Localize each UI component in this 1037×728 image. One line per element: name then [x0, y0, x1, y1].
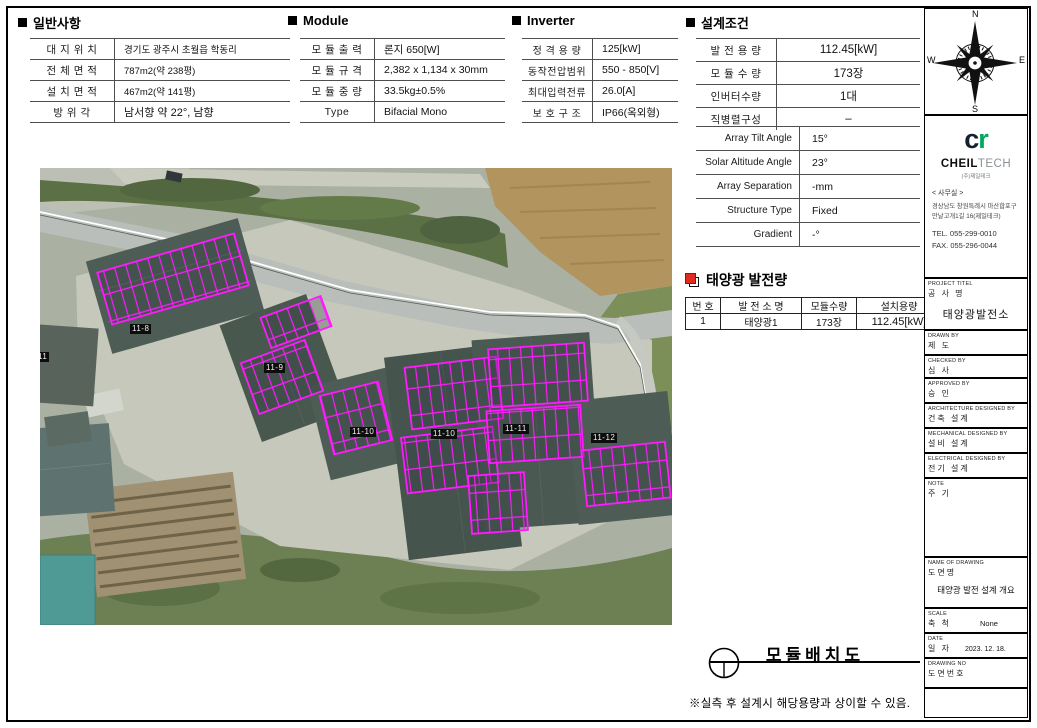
row-label: Array Tilt Angle: [696, 127, 800, 150]
square-bullet-icon: [512, 16, 521, 25]
satellite-map: 11 11-8 11-9 11-10 11-10 11-11 11-12: [40, 168, 672, 625]
field-label-en: ELECTRICAL DESIGNED BY: [928, 456, 1005, 462]
row-value: 2,382 x 1,134 x 30mm: [375, 60, 505, 80]
square-bullet-icon: [18, 18, 27, 27]
parcel-label: 11-10: [350, 427, 376, 437]
table-row: 1 태양광1 173장 112.45[kW]: [686, 314, 942, 330]
office-info: < 사무실 > 경상남도 창원특례시 마산합포구 만날고개1길 16(제일테크)…: [932, 188, 1023, 252]
field-label-ko: 주 기: [928, 488, 951, 499]
row-value: 15°: [800, 127, 920, 150]
table-row: 모 듈 출 력론지 650[W]: [300, 38, 505, 59]
table-row: 모 듈 중 량33.5kg±0.5%: [300, 80, 505, 101]
field-label-en: SCALE: [928, 611, 947, 617]
table-row: 모 듈 규 격2,382 x 1,134 x 30mm: [300, 59, 505, 80]
row-label: 전 체 면 적: [30, 60, 115, 80]
field-label-ko: 심 사: [928, 365, 951, 376]
cell-plant-name: 태양광1: [721, 314, 802, 330]
row-value: 787m2(약 238평): [115, 60, 290, 80]
table-row: 대 지 위 치경기도 광주시 초월읍 학동리: [30, 38, 290, 59]
field-label-ko: 공 사 명: [928, 288, 965, 299]
office-heading: < 사무실 >: [932, 188, 1023, 198]
section-title-text: Inverter: [527, 13, 575, 28]
field-label-en: PROJECT TITEL: [928, 281, 973, 287]
generation-section-title: 태양광 발전량: [685, 270, 787, 290]
field-label-ko: 축 척: [928, 618, 951, 629]
table-row: 설 치 면 적467m2(약 141평): [30, 80, 290, 101]
scale-value: None: [980, 619, 998, 628]
field-label-ko: 제 도: [928, 340, 951, 351]
office-phone: TEL. 055-299-0010 FAX. 055-296-0044: [932, 228, 1023, 253]
office-address-line2: 만날고개1길 16(제일테크): [932, 212, 1023, 222]
field-label-en: APPROVED BY: [928, 381, 970, 387]
field-label-ko: 승 인: [928, 388, 951, 399]
row-value: 550 - 850[V]: [593, 60, 678, 80]
inverter-section-title: Inverter: [512, 13, 575, 28]
design-section-title: 설계조건: [686, 13, 749, 32]
column-header: 모듈수량: [802, 298, 857, 314]
company-logo: cr: [925, 124, 1027, 155]
compass-south-label: S: [972, 104, 978, 114]
table-row: Gradient-°: [696, 222, 920, 247]
date-value: 2023. 12. 18.: [965, 646, 1006, 653]
table-row: 최대입력전류26.0[A]: [522, 80, 678, 101]
module-section-title: Module: [288, 13, 349, 28]
compass-box: N E S W: [924, 8, 1028, 115]
field-label-en: ARCHITECTURE DESIGNED BY: [928, 406, 1015, 412]
row-value: -°: [800, 223, 920, 246]
table-row: 발 전 용 량112.45[kW]: [696, 38, 920, 61]
drawing-name-value: 태양광 발전 설계 개요: [925, 584, 1027, 596]
mechanical-designed-box: MECHANICAL DESIGNED BY 설비 설계: [924, 428, 1028, 453]
section-title-text: 일반사항: [33, 13, 81, 32]
note-box: NOTE 주 기: [924, 478, 1028, 557]
cell-no: 1: [686, 314, 721, 330]
section-title-text: 설계조건: [701, 13, 749, 32]
table-header-row: 번 호 발 전 소 명 모듈수량 설치용량: [686, 298, 942, 314]
project-title-value: 태양광발전소: [925, 306, 1027, 322]
generation-table: 번 호 발 전 소 명 모듈수량 설치용량 1 태양광1 173장 112.45…: [685, 297, 942, 330]
row-label: 정 격 용 량: [522, 39, 593, 59]
row-value: 남서향 약 22°, 남향: [115, 102, 290, 122]
parcel-label: 11-10: [431, 429, 457, 439]
row-label: 대 지 위 치: [30, 39, 115, 59]
square-bullet-icon: [686, 18, 695, 27]
parcel-label: 11-8: [130, 324, 151, 334]
parcel-label: 11-9: [264, 363, 285, 373]
company-name: CHEILTECH: [925, 158, 1027, 170]
inverter-table: 정 격 용 량125[kW] 동작전압범위550 - 850[V] 최대입력전류…: [522, 38, 678, 123]
row-label: 방 위 각: [30, 102, 115, 122]
row-label: 인버터수량: [696, 85, 777, 107]
field-label-ko: 설비 설계: [928, 438, 970, 449]
row-label: Solar Altitude Angle: [696, 151, 800, 174]
drawing-name-box: NAME OF DRAWING 도면명 태양광 발전 설계 개요: [924, 557, 1028, 608]
row-label: Structure Type: [696, 199, 800, 222]
row-label: 최대입력전류: [522, 81, 593, 101]
field-label-ko: 일 자: [928, 643, 951, 654]
module-table: 모 듈 출 력론지 650[W] 모 듈 규 격2,382 x 1,134 x …: [300, 38, 505, 123]
parcel-label: 11: [40, 352, 49, 362]
field-label-en: DRAWING NO: [928, 661, 966, 667]
drawing-sheet: 일반사항 대 지 위 치경기도 광주시 초월읍 학동리 전 체 면 적787m2…: [0, 0, 1037, 728]
row-value: 112.45[kW]: [777, 39, 920, 61]
table-row: 모 듈 수 량173장: [696, 61, 920, 84]
field-label-ko: 전기 설계: [928, 463, 970, 474]
table-row: 전 체 면 적787m2(약 238평): [30, 59, 290, 80]
compass-east-label: E: [1019, 55, 1025, 65]
layered-squares-icon: [685, 273, 699, 287]
field-label-ko: 도면명: [928, 567, 956, 578]
compass-rose-icon: [925, 9, 1026, 114]
office-fax: FAX. 055-296-0044: [932, 240, 1023, 252]
compass-west-label: W: [927, 55, 936, 65]
table-row: Structure TypeFixed: [696, 198, 920, 222]
parcel-label: 11-11: [503, 424, 529, 434]
row-value: 125[kW]: [593, 39, 678, 59]
project-title-box: PROJECT TITEL 공 사 명 태양광발전소: [924, 278, 1028, 330]
general-info-table: 대 지 위 치경기도 광주시 초월읍 학동리 전 체 면 적787m2(약 23…: [30, 38, 290, 123]
row-value: 33.5kg±0.5%: [375, 81, 505, 101]
row-value: 론지 650[W]: [375, 39, 505, 59]
table-row: 정 격 용 량125[kW]: [522, 38, 678, 59]
column-header: 번 호: [686, 298, 721, 314]
table-row: TypeBifacial Mono: [300, 101, 505, 123]
company-subname: (주)제일테크: [925, 172, 1027, 180]
parcel-label: 11-12: [591, 433, 617, 443]
row-label: 보 호 구 조: [522, 102, 593, 122]
office-tel: TEL. 055-299-0010: [932, 228, 1023, 240]
field-label-ko: 도면번호: [928, 668, 965, 679]
cell-module-qty: 173장: [802, 314, 857, 330]
row-value: 467m2(약 141평): [115, 81, 290, 101]
field-label-en: DRAWN BY: [928, 333, 959, 339]
row-label: Gradient: [696, 223, 800, 246]
row-value: 26.0[A]: [593, 81, 678, 101]
footnote: ※실측 후 설계시 해당용량과 상이할 수 있음.: [689, 695, 910, 711]
row-value: Bifacial Mono: [375, 102, 505, 122]
design-conditions-table-a: 발 전 용 량112.45[kW] 모 듈 수 량173장 인버터수량1대 직병…: [696, 38, 920, 130]
row-label: Array Separation: [696, 175, 800, 198]
row-label: 동작전압범위: [522, 60, 593, 80]
scale-box: SCALE 축 척 None: [924, 608, 1028, 633]
row-label: 발 전 용 량: [696, 39, 777, 61]
row-value: IP66(옥외형): [593, 102, 678, 122]
row-value: 23°: [800, 151, 920, 174]
row-label: 모 듈 수 량: [696, 62, 777, 84]
drawing-no-box: DRAWING NO 도면번호: [924, 658, 1028, 688]
general-section-title: 일반사항: [18, 13, 81, 32]
field-label-ko: 건축 설계: [928, 413, 970, 424]
row-value: 1대: [777, 85, 920, 107]
row-label: 모 듈 출 력: [300, 39, 375, 59]
logo-mark-c: c: [964, 124, 978, 154]
section-title-text: Module: [303, 13, 349, 28]
architecture-designed-box: ARCHITECTURE DESIGNED BY 건축 설계: [924, 403, 1028, 428]
row-value: -mm: [800, 175, 920, 198]
row-label: Type: [300, 102, 375, 122]
drawing-title-underline: [709, 661, 920, 663]
section-title-text: 태양광 발전량: [706, 270, 787, 290]
field-label-en: CHECKED BY: [928, 358, 966, 364]
row-value: 경기도 광주시 초월읍 학동리: [115, 39, 290, 59]
row-value: Fixed: [800, 199, 920, 222]
row-value: 173장: [777, 62, 920, 84]
checked-by-box: CHECKED BY 심 사: [924, 355, 1028, 378]
office-address-line1: 경상남도 창원특례시 마산합포구: [932, 202, 1023, 212]
square-bullet-icon: [288, 16, 297, 25]
table-row: 동작전압범위550 - 850[V]: [522, 59, 678, 80]
field-label-en: NOTE: [928, 481, 944, 487]
design-conditions-table-b: Array Tilt Angle15° Solar Altitude Angle…: [696, 126, 920, 247]
field-label-en: DATE: [928, 636, 943, 642]
drawn-by-box: DRAWN BY 제 도: [924, 330, 1028, 355]
field-label-en: MECHANICAL DESIGNED BY: [928, 431, 1007, 437]
empty-box: [924, 688, 1028, 718]
row-label: 모 듈 규 격: [300, 60, 375, 80]
row-label: 설 치 면 적: [30, 81, 115, 101]
date-box: DATE 일 자 2023. 12. 18.: [924, 633, 1028, 658]
compass-north-label: N: [972, 9, 979, 19]
satellite-image: [40, 168, 672, 625]
company-box: cr CHEILTECH (주)제일테크 < 사무실 > 경상남도 창원특례시 …: [924, 115, 1028, 278]
title-block: N E S W cr CHEILTECH (주)제일테크 < 사무실 > 경상남…: [924, 8, 1028, 720]
electrical-designed-box: ELECTRICAL DESIGNED BY 전기 설계: [924, 453, 1028, 478]
table-row: Solar Altitude Angle23°: [696, 150, 920, 174]
table-row: Array Tilt Angle15°: [696, 126, 920, 150]
approved-by-box: APPROVED BY 승 인: [924, 378, 1028, 403]
row-label: 모 듈 중 량: [300, 81, 375, 101]
logo-mark-r: r: [978, 124, 988, 154]
table-row: 보 호 구 조IP66(옥외형): [522, 101, 678, 123]
field-label-en: NAME OF DRAWING: [928, 560, 984, 566]
column-header: 발 전 소 명: [721, 298, 802, 314]
table-row: 방 위 각남서향 약 22°, 남향: [30, 101, 290, 123]
table-row: Array Separation-mm: [696, 174, 920, 198]
table-row: 인버터수량1대: [696, 84, 920, 107]
